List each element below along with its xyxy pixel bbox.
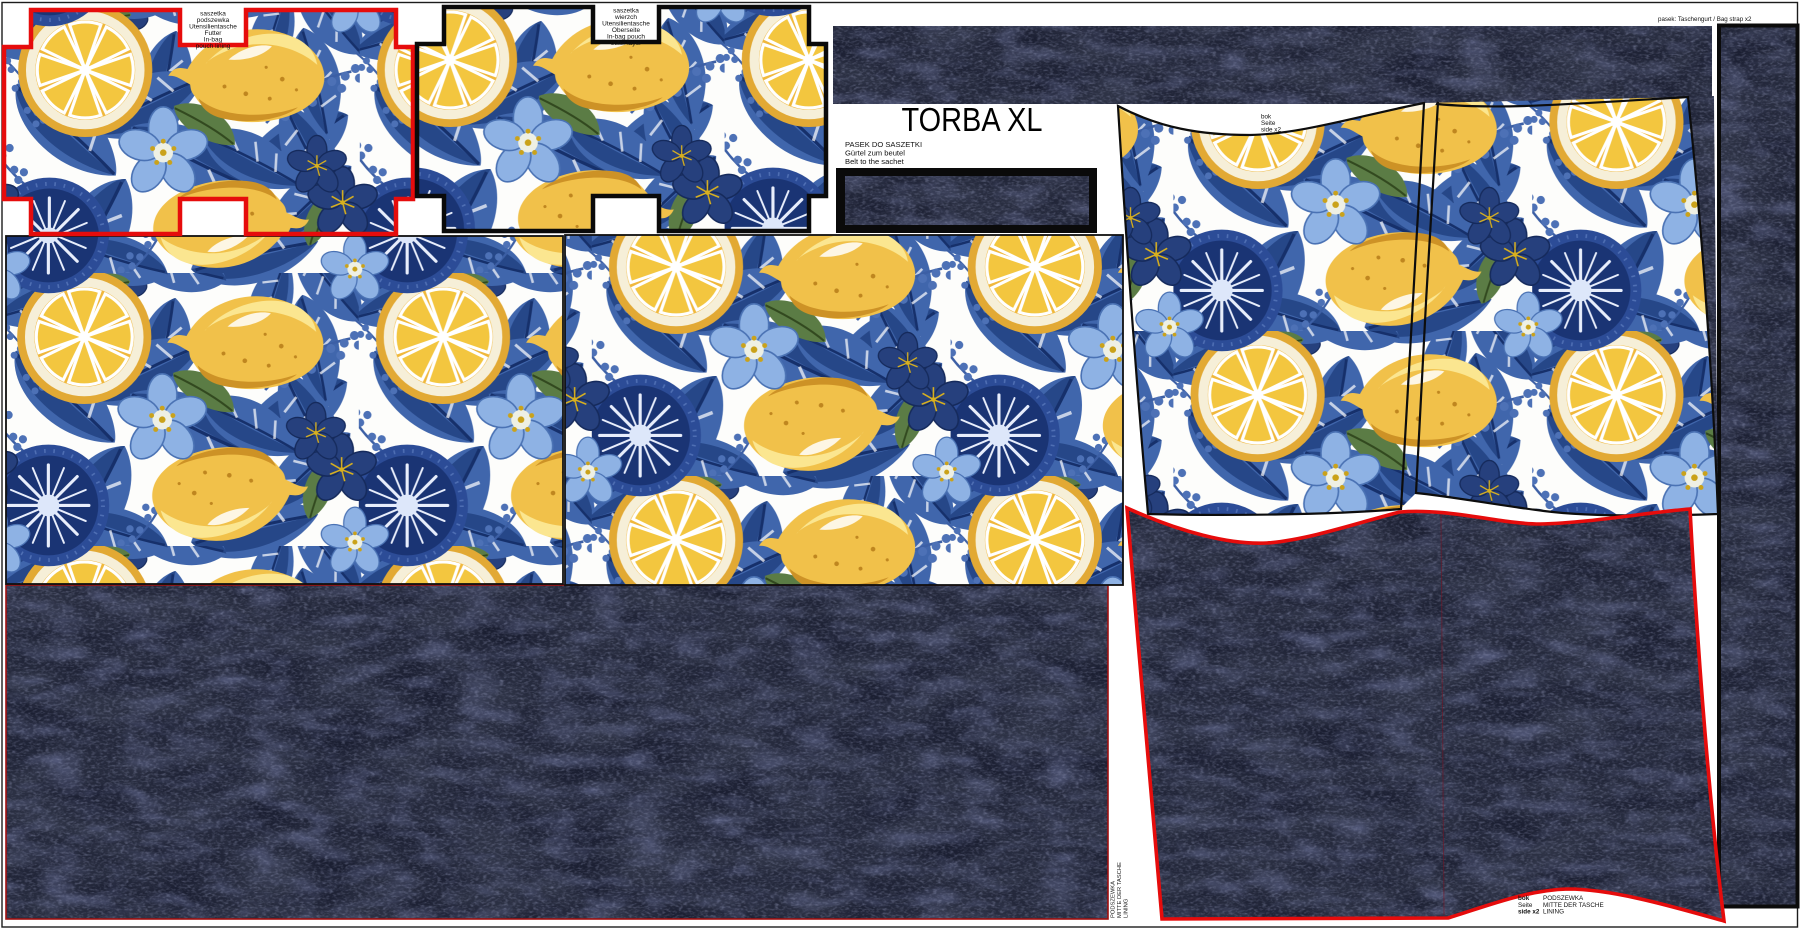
svg-text:side x2: side x2 [1518,909,1540,916]
svg-text:side x2: side x2 [1261,126,1281,133]
svg-text:LINING: LINING [1543,909,1564,916]
svg-text:MITTE DER TASCHE: MITTE DER TASCHE [1117,862,1123,918]
svg-text:TORBA XL: TORBA XL [902,101,1043,138]
svg-text:Belt to the sachet: Belt to the sachet [845,157,905,166]
svg-text:PODSZEWKA: PODSZEWKA [1111,881,1117,918]
svg-text:pasek: Taschengurt / Bag strap: pasek: Taschengurt / Bag strap x2 [1658,16,1752,23]
svg-text:LINING: LINING [1124,898,1130,918]
svg-text:pouch lining: pouch lining [196,43,231,50]
svg-text:outer layer: outer layer [611,40,643,47]
